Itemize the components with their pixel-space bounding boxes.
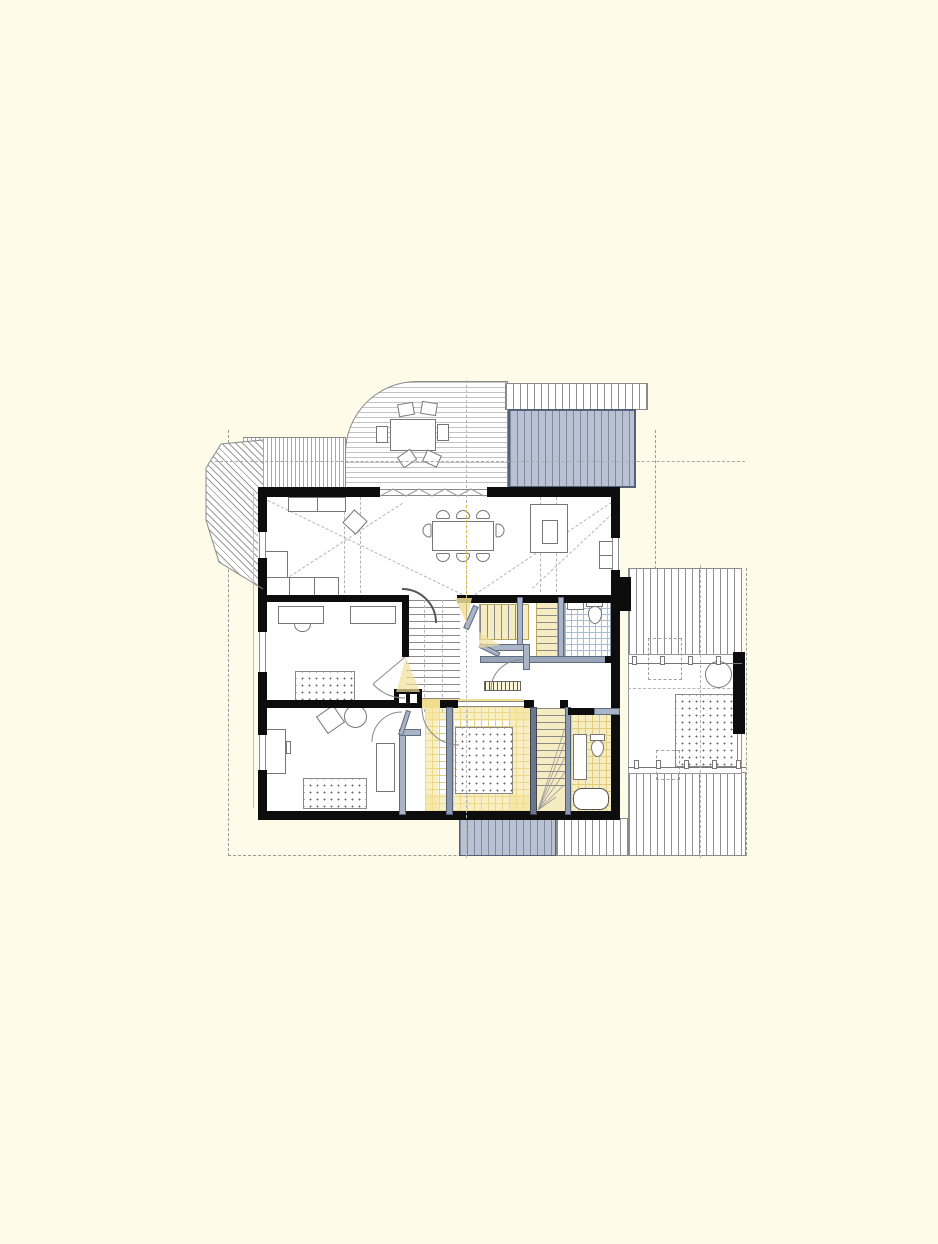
door-swing-hall <box>491 660 521 690</box>
bay-roof-outline <box>206 440 263 589</box>
yellow-wedge <box>479 632 500 648</box>
stair-winder-fan <box>538 728 565 810</box>
axis-vertical-yellow-segment <box>466 505 467 620</box>
floor-plan-canvas <box>0 0 938 1244</box>
door-swing-bedroom <box>372 712 402 742</box>
curved-wall <box>402 589 436 623</box>
door-swing-yellow-room <box>422 708 459 745</box>
section-axis-horizontal <box>215 461 745 462</box>
axis-vertical-wing <box>700 565 701 858</box>
yellow-wedge <box>455 598 472 622</box>
linework-overlay <box>0 0 938 1244</box>
yellow-wedge <box>396 657 420 692</box>
folding-door-zigzag <box>380 489 484 496</box>
